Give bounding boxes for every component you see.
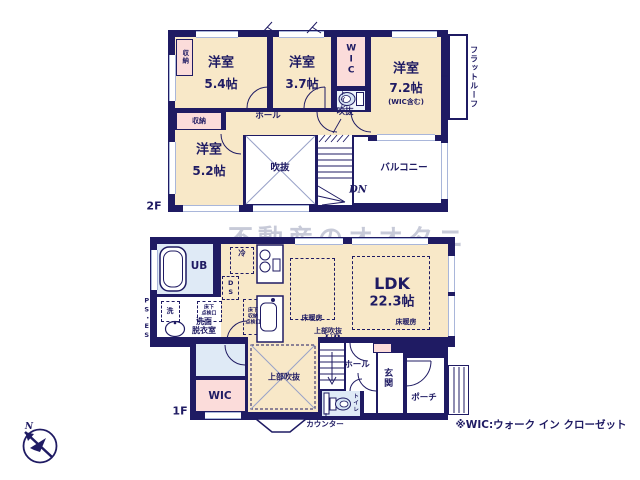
porch-label: ポーチ	[411, 394, 437, 404]
underfloor-hatch-label: 床下点検口	[201, 305, 216, 317]
window	[295, 238, 343, 245]
room-54-name: 洋室	[208, 57, 234, 72]
counter-label: カウンター	[306, 421, 344, 430]
refrigerator-label: 冷	[238, 250, 246, 259]
room-37	[273, 37, 331, 108]
void-2f-label: 吹抜	[270, 164, 289, 175]
compass-north-label: N	[25, 422, 33, 432]
void-over-stairs-strip	[318, 135, 352, 142]
flat-roof-area	[448, 34, 468, 120]
laundry-label: 洗	[167, 307, 174, 315]
compass-icon	[24, 430, 57, 463]
window	[196, 31, 238, 38]
void-over-stairs-label: 吹抜	[336, 108, 353, 118]
washroom-label: 洗面脱衣室	[192, 317, 216, 335]
wic-2f-label: WIC	[346, 44, 356, 77]
entrance-label: 玄関	[382, 368, 392, 388]
hall-2f-label: ホール	[255, 112, 281, 122]
closet-mid-label: 収納	[192, 117, 206, 125]
flat-roof-label: フラットルーフ	[469, 46, 478, 109]
window	[253, 205, 309, 212]
window	[205, 412, 241, 419]
underfloor-storage-label: 床下収納点検口	[245, 308, 260, 325]
window	[377, 134, 435, 141]
duct-space-label: DS	[226, 279, 233, 297]
stairs-1f-area	[320, 343, 344, 389]
window	[279, 31, 324, 38]
window	[441, 143, 448, 199]
shoe-cabinet	[373, 343, 392, 353]
floor1-label: 1F	[172, 406, 187, 419]
stairs-2f-area	[318, 142, 352, 205]
wic-1f-label: WIC	[208, 390, 231, 402]
porch-steps	[448, 365, 469, 415]
window	[392, 31, 437, 38]
floor-heating-right-label: 床暖房	[396, 318, 417, 326]
ldk-name: LDK	[374, 275, 410, 293]
stairs-down-label: DN	[349, 184, 367, 196]
hall-1f-label: ホール	[344, 361, 370, 371]
toilet-1f-label: トイレ	[352, 393, 358, 413]
stairs-up-label: UP	[324, 335, 339, 346]
corridor-1f	[196, 344, 245, 376]
ldk-size: 22.3帖	[369, 296, 414, 311]
window	[448, 256, 455, 292]
room-37-size: 3.7帖	[285, 78, 318, 92]
floor-heating-left-box	[290, 258, 335, 320]
upper-void-label: 上部吹抜	[268, 372, 300, 381]
room-37-name: 洋室	[289, 57, 315, 72]
wic-note: ※WIC:ウォーク イン クローゼット	[456, 419, 627, 431]
window	[183, 205, 239, 212]
room-72-note: (WIC含む)	[388, 98, 424, 106]
balcony-label: バルコニー	[380, 164, 427, 175]
room-54-size: 5.4帖	[204, 78, 237, 92]
floor-heating-left-label: 床暖房	[302, 314, 323, 322]
closet-side-label: 収納	[180, 50, 187, 65]
floor2-label: 2F	[146, 201, 161, 214]
floor-plan-canvas: 不動産のオオタニ	[0, 0, 640, 480]
unit-bath-label: UB	[191, 260, 208, 272]
pipe-space-label: PS・ES	[142, 296, 149, 340]
window	[448, 296, 455, 336]
window	[151, 250, 158, 290]
wall-toilet-hall	[360, 391, 364, 416]
room-52-name: 洋室	[196, 144, 222, 159]
porch	[407, 358, 444, 413]
window	[169, 142, 176, 194]
window	[169, 55, 176, 101]
room-52-size: 5.2帖	[192, 165, 225, 179]
room-72-size: 7.2帖	[389, 82, 422, 96]
room-72-name: 洋室	[393, 63, 419, 78]
window	[352, 238, 428, 245]
bay-window	[256, 419, 306, 432]
